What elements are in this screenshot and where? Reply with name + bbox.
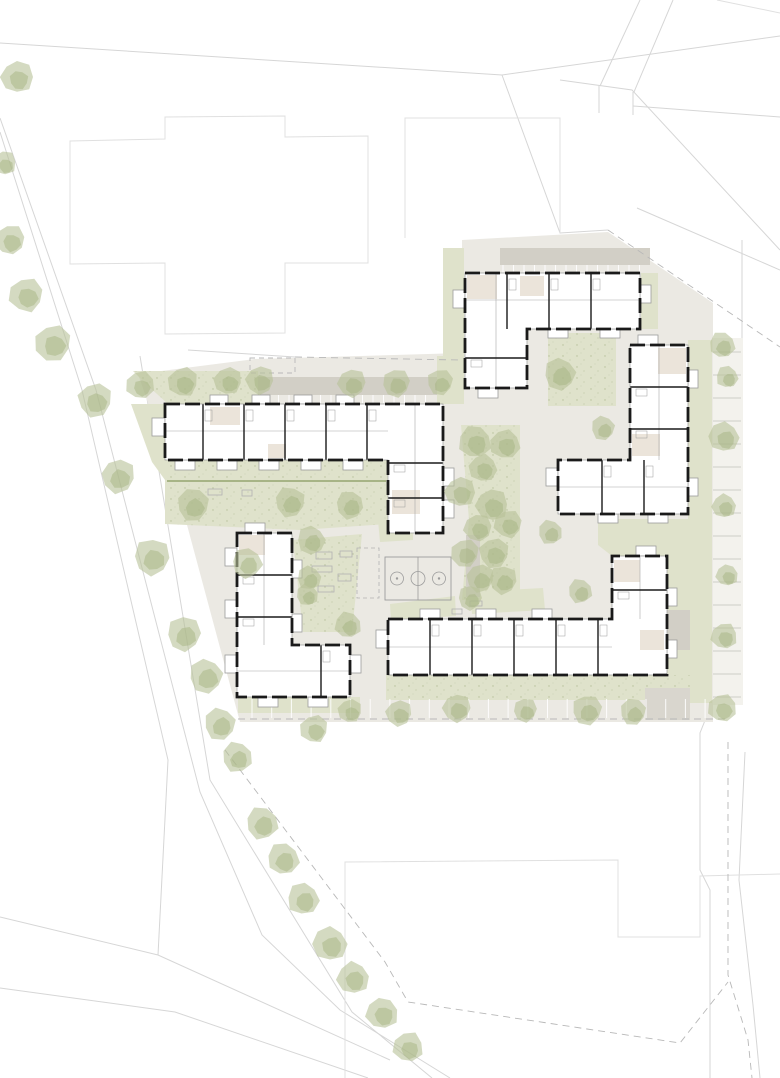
- building-southwest-porch: [308, 697, 328, 707]
- building-west-porch: [343, 460, 363, 470]
- building-north-porch: [640, 285, 651, 303]
- building-north-tinted-room: [520, 276, 544, 296]
- parking-pad: [500, 248, 650, 265]
- basketball-hoop-icon: [438, 577, 440, 579]
- road-se-east-edge: [739, 752, 760, 1078]
- building-south-tinted-room: [614, 560, 640, 582]
- building-east-porch: [688, 370, 698, 388]
- building-west-tinted-room: [268, 444, 286, 458]
- road-se-west-edge: [700, 703, 712, 1078]
- parking-pad: [645, 688, 690, 720]
- lawn-speckle-texture: [386, 675, 690, 700]
- building-west-porch: [152, 418, 165, 436]
- building-southwest-porch: [225, 655, 237, 673]
- building-north-porch: [453, 290, 465, 308]
- context-building-nw: [70, 116, 368, 334]
- building-southwest-porch: [292, 614, 302, 632]
- building-southwest-porch: [245, 523, 265, 533]
- road-ne-parallel: [637, 208, 780, 270]
- lawn-area: [131, 404, 165, 480]
- building-east-porch: [688, 478, 698, 496]
- road-sw-2: [0, 988, 368, 1078]
- building-west-tinted-room: [392, 490, 420, 514]
- curb-north: [188, 350, 295, 357]
- building-southwest-porch: [258, 697, 278, 707]
- building-west-porch: [217, 460, 237, 470]
- building-south-porch: [636, 546, 656, 556]
- site-plan-page: [0, 0, 780, 1078]
- building-south-porch: [476, 609, 496, 619]
- building-west-porch: [259, 460, 279, 470]
- building-west-tinted-room: [210, 407, 240, 425]
- road-ne-upper: [560, 80, 780, 250]
- building-south-porch: [420, 609, 440, 619]
- building-southwest-porch: [225, 600, 237, 618]
- building-south-tinted-room: [640, 630, 664, 650]
- context-corner-ne: [717, 0, 780, 13]
- context-building-n: [405, 118, 560, 238]
- building-east-porch: [638, 335, 658, 345]
- road-ne-diag: [502, 75, 608, 233]
- road-centerline-se: [728, 742, 752, 1078]
- building-north-tinted-room: [467, 275, 497, 299]
- building-east-porch: [546, 468, 558, 486]
- lawn-area: [688, 340, 712, 703]
- building-southwest-porch: [350, 655, 361, 673]
- building-west-porch: [175, 460, 195, 470]
- building-south-porch: [376, 630, 388, 648]
- road-ne-top2: [634, 0, 673, 92]
- road-ne-top1: [600, 0, 640, 86]
- road-top-edge: [0, 36, 780, 75]
- building-south-porch: [667, 640, 677, 658]
- site-plan-drawing: [0, 0, 780, 1078]
- building-south-porch: [667, 588, 677, 606]
- building-east-tinted-room: [658, 348, 686, 374]
- building-north-porch: [478, 388, 498, 398]
- parking-pad: [713, 338, 743, 705]
- building-south-porch: [532, 609, 552, 619]
- basketball-hoop-icon: [396, 577, 398, 579]
- building-west-porch: [301, 460, 321, 470]
